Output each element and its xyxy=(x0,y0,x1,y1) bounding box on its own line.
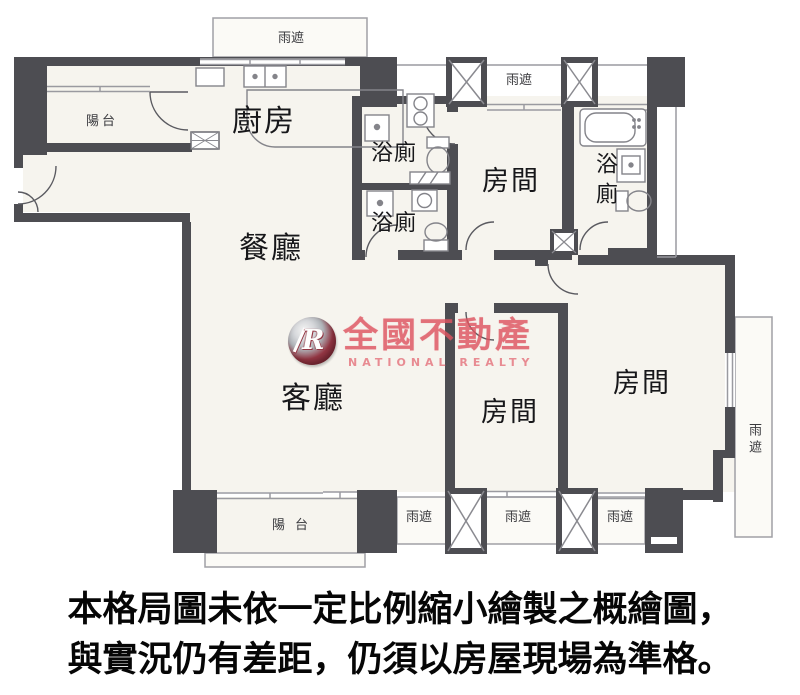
realty-watermark: R 全國不動產 NATIONAL REALTY xyxy=(288,317,535,369)
disclaimer-line-2: 與實況仍有差距，仍須以房屋現場為準格。 xyxy=(0,635,800,685)
label-canopy-bottom-1: 雨遮 xyxy=(406,506,432,525)
vent-box-icon xyxy=(191,132,219,149)
floor-plan-drawing xyxy=(0,0,800,580)
wall xyxy=(725,405,735,455)
wall xyxy=(447,107,458,112)
label-balcony-top: 陽台 xyxy=(86,110,118,129)
sink xyxy=(617,149,645,182)
label-kitchen: 廚房 xyxy=(232,96,296,140)
pillar-vent xyxy=(651,537,677,544)
label-bath-upper: 浴廁 xyxy=(371,135,417,167)
ledge-line-right xyxy=(657,107,676,257)
shaft-icon-small xyxy=(552,231,576,253)
floor-plan-page: 廚房 餐廳 客廳 房間 房間 房間 浴廁 浴廁 浴廁 陽台 陽台 雨遮 雨遮 雨… xyxy=(0,0,800,695)
shaft-icon xyxy=(449,60,484,104)
label-bath-right: 浴廁 xyxy=(588,152,620,212)
wall-living-left xyxy=(182,222,191,493)
wall-bath-left xyxy=(352,100,362,260)
realty-logo-icon: R xyxy=(288,317,336,365)
wall-bedroom3-top xyxy=(578,255,735,265)
bathtub xyxy=(580,109,646,146)
shaft-icon xyxy=(448,491,484,551)
balcony-lip xyxy=(205,553,365,567)
pillar xyxy=(357,490,397,553)
wall-bath-top xyxy=(352,96,459,104)
wall xyxy=(14,152,23,168)
disclaimer-line-1: 本格局圖未依一定比例縮小繪製之概繪圖， xyxy=(0,585,800,635)
shaft-icon xyxy=(559,491,595,551)
label-balcony-bottom: 陽台 xyxy=(272,514,318,533)
label-bedroom-top: 房間 xyxy=(482,159,540,198)
wall-bedroom1-right xyxy=(562,107,574,233)
label-bedroom-right: 房間 xyxy=(613,361,671,400)
stove xyxy=(407,94,434,127)
kitchen-sink xyxy=(244,66,286,87)
wall-bath-right-outer xyxy=(647,107,657,250)
wall xyxy=(447,250,462,260)
brand-text-block: 全國不動產 NATIONAL REALTY xyxy=(343,317,535,369)
wall-bedroom2-top xyxy=(494,303,568,313)
label-bath-lower: 浴廁 xyxy=(371,205,417,237)
label-canopy-bottom-3: 雨遮 xyxy=(607,506,633,525)
wall xyxy=(535,257,548,266)
pillar xyxy=(647,57,685,107)
wall-entry-bottom xyxy=(14,213,190,222)
wall xyxy=(683,490,715,500)
brand-name: 全國不動產 xyxy=(343,317,535,355)
label-canopy-topstrip: 雨遮 xyxy=(506,69,532,88)
label-dining: 餐廳 xyxy=(239,223,303,267)
wall xyxy=(47,57,190,66)
window-band xyxy=(725,353,735,407)
logo-monogram: R xyxy=(302,325,324,356)
label-bedroom-middle: 房間 xyxy=(481,390,539,429)
brand-name-english: NATIONAL REALTY xyxy=(348,356,535,369)
wall xyxy=(47,143,192,152)
wall-bedroom2-right xyxy=(558,303,568,493)
wall xyxy=(352,250,365,260)
label-canopy-top: 雨遮 xyxy=(278,27,304,46)
shaft-icon xyxy=(564,60,595,104)
disclaimer-caption: 本格局圖未依一定比例縮小繪製之概繪圖， 與實況仍有差距，仍須以房屋現場為準格。 xyxy=(0,585,800,685)
pillar xyxy=(173,490,217,553)
wall-slab-topleft xyxy=(14,57,47,155)
label-canopy-bottom-2: 雨遮 xyxy=(505,506,531,525)
wall-bedroom3-right xyxy=(725,255,735,355)
cabinet xyxy=(196,68,224,86)
vanity xyxy=(410,172,450,184)
label-canopy-right: 雨遮 xyxy=(744,423,763,457)
label-living: 客廳 xyxy=(281,373,345,417)
